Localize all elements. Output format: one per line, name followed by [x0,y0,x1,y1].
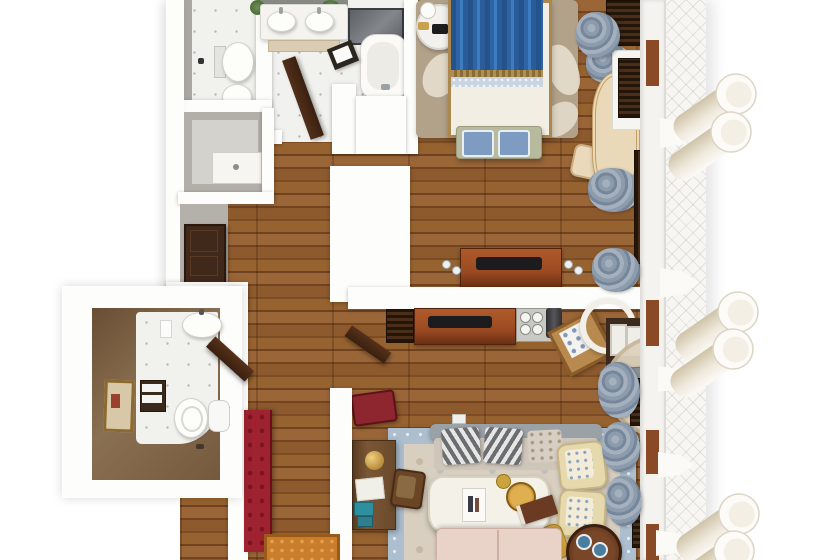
living-tv [428,316,492,328]
armchair-cushion [565,496,594,528]
coffee-cup [520,312,531,323]
sink-right [305,11,334,32]
coffee-cup [532,324,543,335]
window-reveal [646,430,659,474]
gold-dish [496,474,511,489]
shelf-towel [142,384,162,392]
art-red-motif [111,394,120,408]
powder-toilet-seat [181,406,203,432]
faucet [317,7,321,14]
pink-sofa-cushion-seam [497,530,499,560]
tub-compartment-wall [356,96,406,154]
thermostat [452,414,466,424]
wc-bottom-wall [184,100,272,112]
bathroom-wall-face [184,0,192,104]
bed-blue-drape [451,0,543,72]
bedroom-tv [476,257,542,270]
chaise-fur-throw [588,168,640,212]
shelf-towel [142,395,162,403]
central-closet-block [330,166,410,302]
photo-figure [468,496,473,512]
gold-tray-item [418,22,429,30]
bathroom-corner-wall [332,84,356,154]
wardrobe-panel-line [190,256,218,276]
shower-room-bottom-wall [178,192,274,204]
phone [432,24,448,34]
tub-faucet [381,84,390,90]
toilet [222,42,254,82]
curtain-tuft [606,476,642,526]
slatted-shelf [386,309,414,343]
shower-drain [233,164,239,170]
curtain-tuft [576,12,620,58]
oval-washbasin [182,312,222,338]
blue-cup [592,542,608,558]
photo-card [462,488,486,522]
faucet [279,7,283,14]
window-reveal [646,40,659,86]
desk-chair-seat [396,475,417,499]
towel-roll [160,320,172,338]
bathtub-basin [367,42,399,90]
toilet-paper-holder [198,58,204,64]
bed-lace-band [451,77,543,87]
drinking-glasses [452,266,461,275]
window-reveal [646,300,659,346]
armchair-cushion [565,448,595,481]
waste-bin [208,400,230,432]
blue-cup [576,534,592,550]
red-damask-wardrobe [244,410,272,552]
bench-pillow [462,130,494,157]
floor-object [196,444,204,449]
drinking-glasses [442,260,451,269]
basin-faucet [199,309,204,315]
coffee-cup [532,312,543,323]
photo-figure [475,498,479,512]
desk-papers [355,477,385,502]
globe-lamp [365,451,384,470]
curtain-tuft [602,422,640,472]
bench-pillow [498,130,530,157]
sink-left [267,11,296,32]
shower-room-right-wall [262,108,274,200]
floor-plan-canvas [0,0,820,560]
entry-rug [264,534,340,560]
zebra-pillow [441,427,481,466]
coffee-pot [420,2,436,19]
teal-box [354,502,374,516]
curtain-tuft [598,362,640,418]
bed-drape-fringe [451,70,543,77]
red-bench [350,389,398,427]
curtain-tuft [592,248,640,292]
teal-box [357,516,373,527]
wardrobe-panel-line [190,230,218,252]
zebra-pillow [483,427,523,466]
pink-sofa [436,528,562,560]
drinking-glasses [574,266,583,275]
drinking-glasses [564,260,573,269]
coffee-cup [520,324,531,335]
